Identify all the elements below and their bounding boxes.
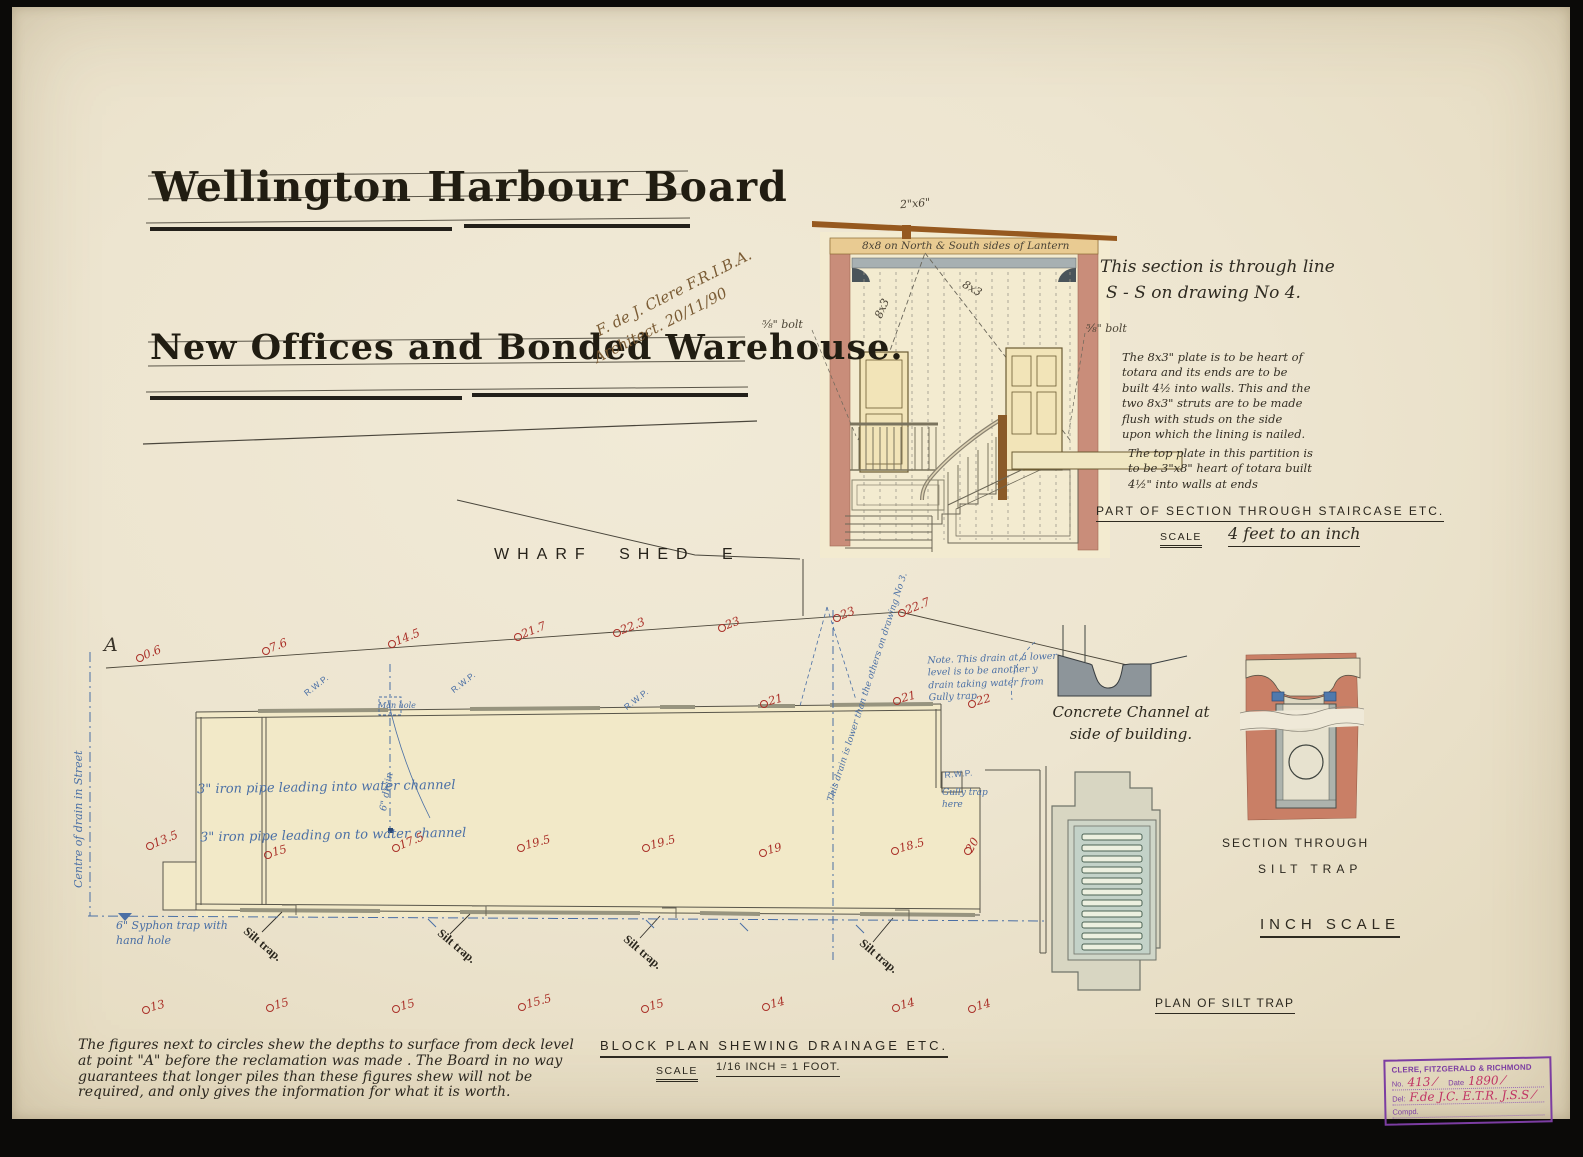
architects-stamp: CLERE, FITZGERALD & RICHMOND No. 413 ⁄ D…: [1383, 1056, 1552, 1125]
bolt-label-right: ⅝" bolt: [1086, 322, 1127, 335]
depth-marker: 21: [893, 693, 918, 705]
pile-depth-value: 22: [975, 693, 992, 708]
depth-marker: 14: [892, 1000, 917, 1012]
depth-marker: 13.5: [146, 838, 182, 850]
stamp-date-value: 1890 ⁄: [1468, 1075, 1505, 1087]
depth-marker: 15: [641, 1001, 666, 1013]
depth-marker: 22.7: [898, 605, 934, 617]
roof-dimension-label: 2"x6": [899, 196, 930, 212]
bolt-label-left: ⅝" bolt: [762, 318, 803, 331]
stamp-no-label: No.: [1392, 1079, 1404, 1088]
depth-marker: 22.3: [613, 625, 649, 637]
stamp-comp-row: Compd.: [1392, 1104, 1544, 1118]
section-note-line2: S - S on drawing No 4.: [1106, 280, 1335, 306]
pile-depth-value: 15: [273, 997, 290, 1012]
pile-depth-value: 14: [899, 997, 916, 1012]
pile-depth-circle: [641, 1005, 649, 1013]
pile-depth-value: 23: [839, 605, 857, 621]
pile-depth-circle: [762, 1003, 770, 1011]
pile-depth-value: 15.5: [525, 993, 553, 1011]
stamp-no-value: 413 ⁄: [1407, 1077, 1436, 1088]
depth-marker: 21.7: [514, 629, 550, 641]
pile-depth-circle: [891, 847, 899, 855]
silt-plan-caption: PLAN OF SILT TRAP: [1155, 996, 1295, 1014]
depth-marker: 19.5: [642, 840, 678, 852]
scanned-drawing-sheet: Wellington Harbour Board New Offices and…: [0, 0, 1583, 1157]
depth-marker: 7.6: [262, 643, 290, 655]
depth-marker: 15: [266, 1000, 291, 1012]
pile-depth-circle: [968, 1005, 976, 1013]
pile-depth-circle: [759, 849, 767, 857]
pile-depth-circle: [517, 844, 525, 852]
depth-marker: 14.5: [388, 636, 424, 648]
depth-marker: 0.6: [136, 650, 164, 662]
stamp-comp-blank: [1419, 1113, 1545, 1116]
stamp-del-value: F.de J.C. E.T.R. J.S.S ⁄: [1409, 1089, 1535, 1102]
pile-depth-circle: [968, 700, 976, 708]
pile-depth-value: 21: [767, 693, 784, 708]
street-drain-note: Centre of drain in Street: [72, 750, 85, 888]
inch-scale-label: INCH SCALE: [1260, 916, 1400, 938]
pile-depth-value: 14: [769, 996, 786, 1011]
block-plan-scale-label: SCALE: [656, 1065, 698, 1082]
pile-depth-circle: [142, 1006, 150, 1014]
pile-depth-value: 15: [399, 998, 416, 1013]
pile-depth-circle: [642, 844, 650, 852]
block-plan-caption: BLOCK PLAN SHEWING DRAINAGE ETC.: [600, 1038, 948, 1058]
lantern-beam-label: 8x8 on North & South sides of Lantern: [862, 240, 1069, 252]
depth-marker: 21: [760, 696, 785, 708]
top-plate-note: The top plate in this partition is to be…: [1128, 446, 1328, 492]
depth-marker: 19.5: [517, 840, 553, 852]
pile-depth-footnote: The figures next to circles shew the dep…: [78, 1038, 574, 1101]
depth-marker: 17.5: [392, 840, 428, 852]
concrete-channel-caption-line2: side of building.: [1040, 724, 1222, 746]
silt-trap-plan-detail: [1052, 772, 1160, 990]
gully-trap-note: Gully trap here: [942, 788, 1002, 811]
depth-marker: 23: [718, 620, 743, 632]
pile-depth-circle: [893, 697, 901, 705]
pile-depth-value: 13: [149, 999, 166, 1014]
pile-depth-circle: [518, 1003, 526, 1011]
pile-depth-circle: [392, 1005, 400, 1013]
pile-depth-value: 7.6: [268, 637, 289, 655]
pile-depth-value: 15: [648, 998, 665, 1013]
wharf-lines: [143, 421, 803, 616]
depth-marker: 15: [264, 847, 289, 859]
depth-marker: 15: [392, 1001, 417, 1013]
pile-depth-value: 14: [975, 998, 992, 1013]
staircase-scale-value: 4 feet to an inch: [1228, 524, 1360, 547]
plate-specification-note: The 8x3" plate is to be heart of totara …: [1122, 350, 1314, 442]
stamp-del-label: Del:: [1392, 1094, 1406, 1103]
concrete-channel-detail: [1058, 625, 1187, 696]
depth-marker: 20: [964, 843, 989, 855]
pile-depth-value: 18.5: [898, 837, 926, 855]
syphon-trap-note: 6" Syphon trap with hand hole: [116, 918, 234, 949]
sheet-title-line2: New Offices and Bonded Warehouse.: [150, 327, 904, 368]
pile-depth-circle: [892, 1004, 900, 1012]
pile-depth-value: 19.5: [649, 834, 677, 852]
stamp-comp-label: Compd.: [1392, 1107, 1418, 1117]
depth-marker: 14: [968, 1001, 993, 1013]
pile-depth-circle: [760, 700, 768, 708]
staircase-scale-label: SCALE: [1160, 531, 1202, 548]
pile-depth-value: 23: [724, 615, 742, 631]
depth-marker: 23: [833, 610, 858, 622]
manhole-label: Man hole: [378, 701, 416, 710]
depth-marker: 22: [968, 696, 993, 708]
pile-depth-value: 15: [271, 844, 288, 859]
staircase-section-caption: PART OF SECTION THROUGH STAIRCASE ETC.: [1096, 504, 1444, 522]
block-plan-scale-value: 1/16 INCH = 1 FOOT.: [716, 1061, 840, 1077]
silt-section-caption-line2: SILT TRAP: [1258, 862, 1362, 876]
pile-depth-circle: [266, 1004, 274, 1012]
section-reference-note: This section is through line S - S on dr…: [1100, 254, 1335, 307]
pile-depth-value: 0.6: [142, 644, 163, 662]
pile-depth-value: 21: [900, 690, 917, 705]
pile-depth-value: 19: [766, 842, 783, 857]
point-a-label: A: [104, 634, 118, 656]
silt-section-caption-line1: SECTION THROUGH: [1222, 836, 1369, 850]
stamp-firm-name: CLERE, FITZGERALD & RICHMOND: [1391, 1062, 1543, 1074]
drain-note: Note. This drain at a lower level is to …: [927, 651, 1063, 705]
depth-marker: 14: [762, 999, 787, 1011]
pile-depth-circle: [264, 851, 272, 859]
wharf-shed-label: WHARF SHED E: [494, 546, 741, 564]
concrete-channel-caption: Concrete Channel at side of building.: [1040, 702, 1222, 746]
depth-marker: 15.5: [518, 999, 554, 1011]
depth-marker: 13: [142, 1002, 167, 1014]
stamp-del-row: Del: F.de J.C. E.T.R. J.S.S ⁄: [1392, 1089, 1544, 1105]
depth-marker: 19: [759, 845, 784, 857]
section-note-line1: This section is through line: [1100, 254, 1335, 280]
stamp-date-label: Date: [1448, 1078, 1464, 1087]
sheet-title-line1: Wellington Harbour Board: [152, 163, 788, 211]
depth-marker: 18.5: [891, 843, 927, 855]
pile-depth-value: 19.5: [524, 834, 552, 852]
concrete-channel-caption-line1: Concrete Channel at: [1040, 702, 1222, 724]
silt-trap-section-detail: [1240, 653, 1364, 820]
